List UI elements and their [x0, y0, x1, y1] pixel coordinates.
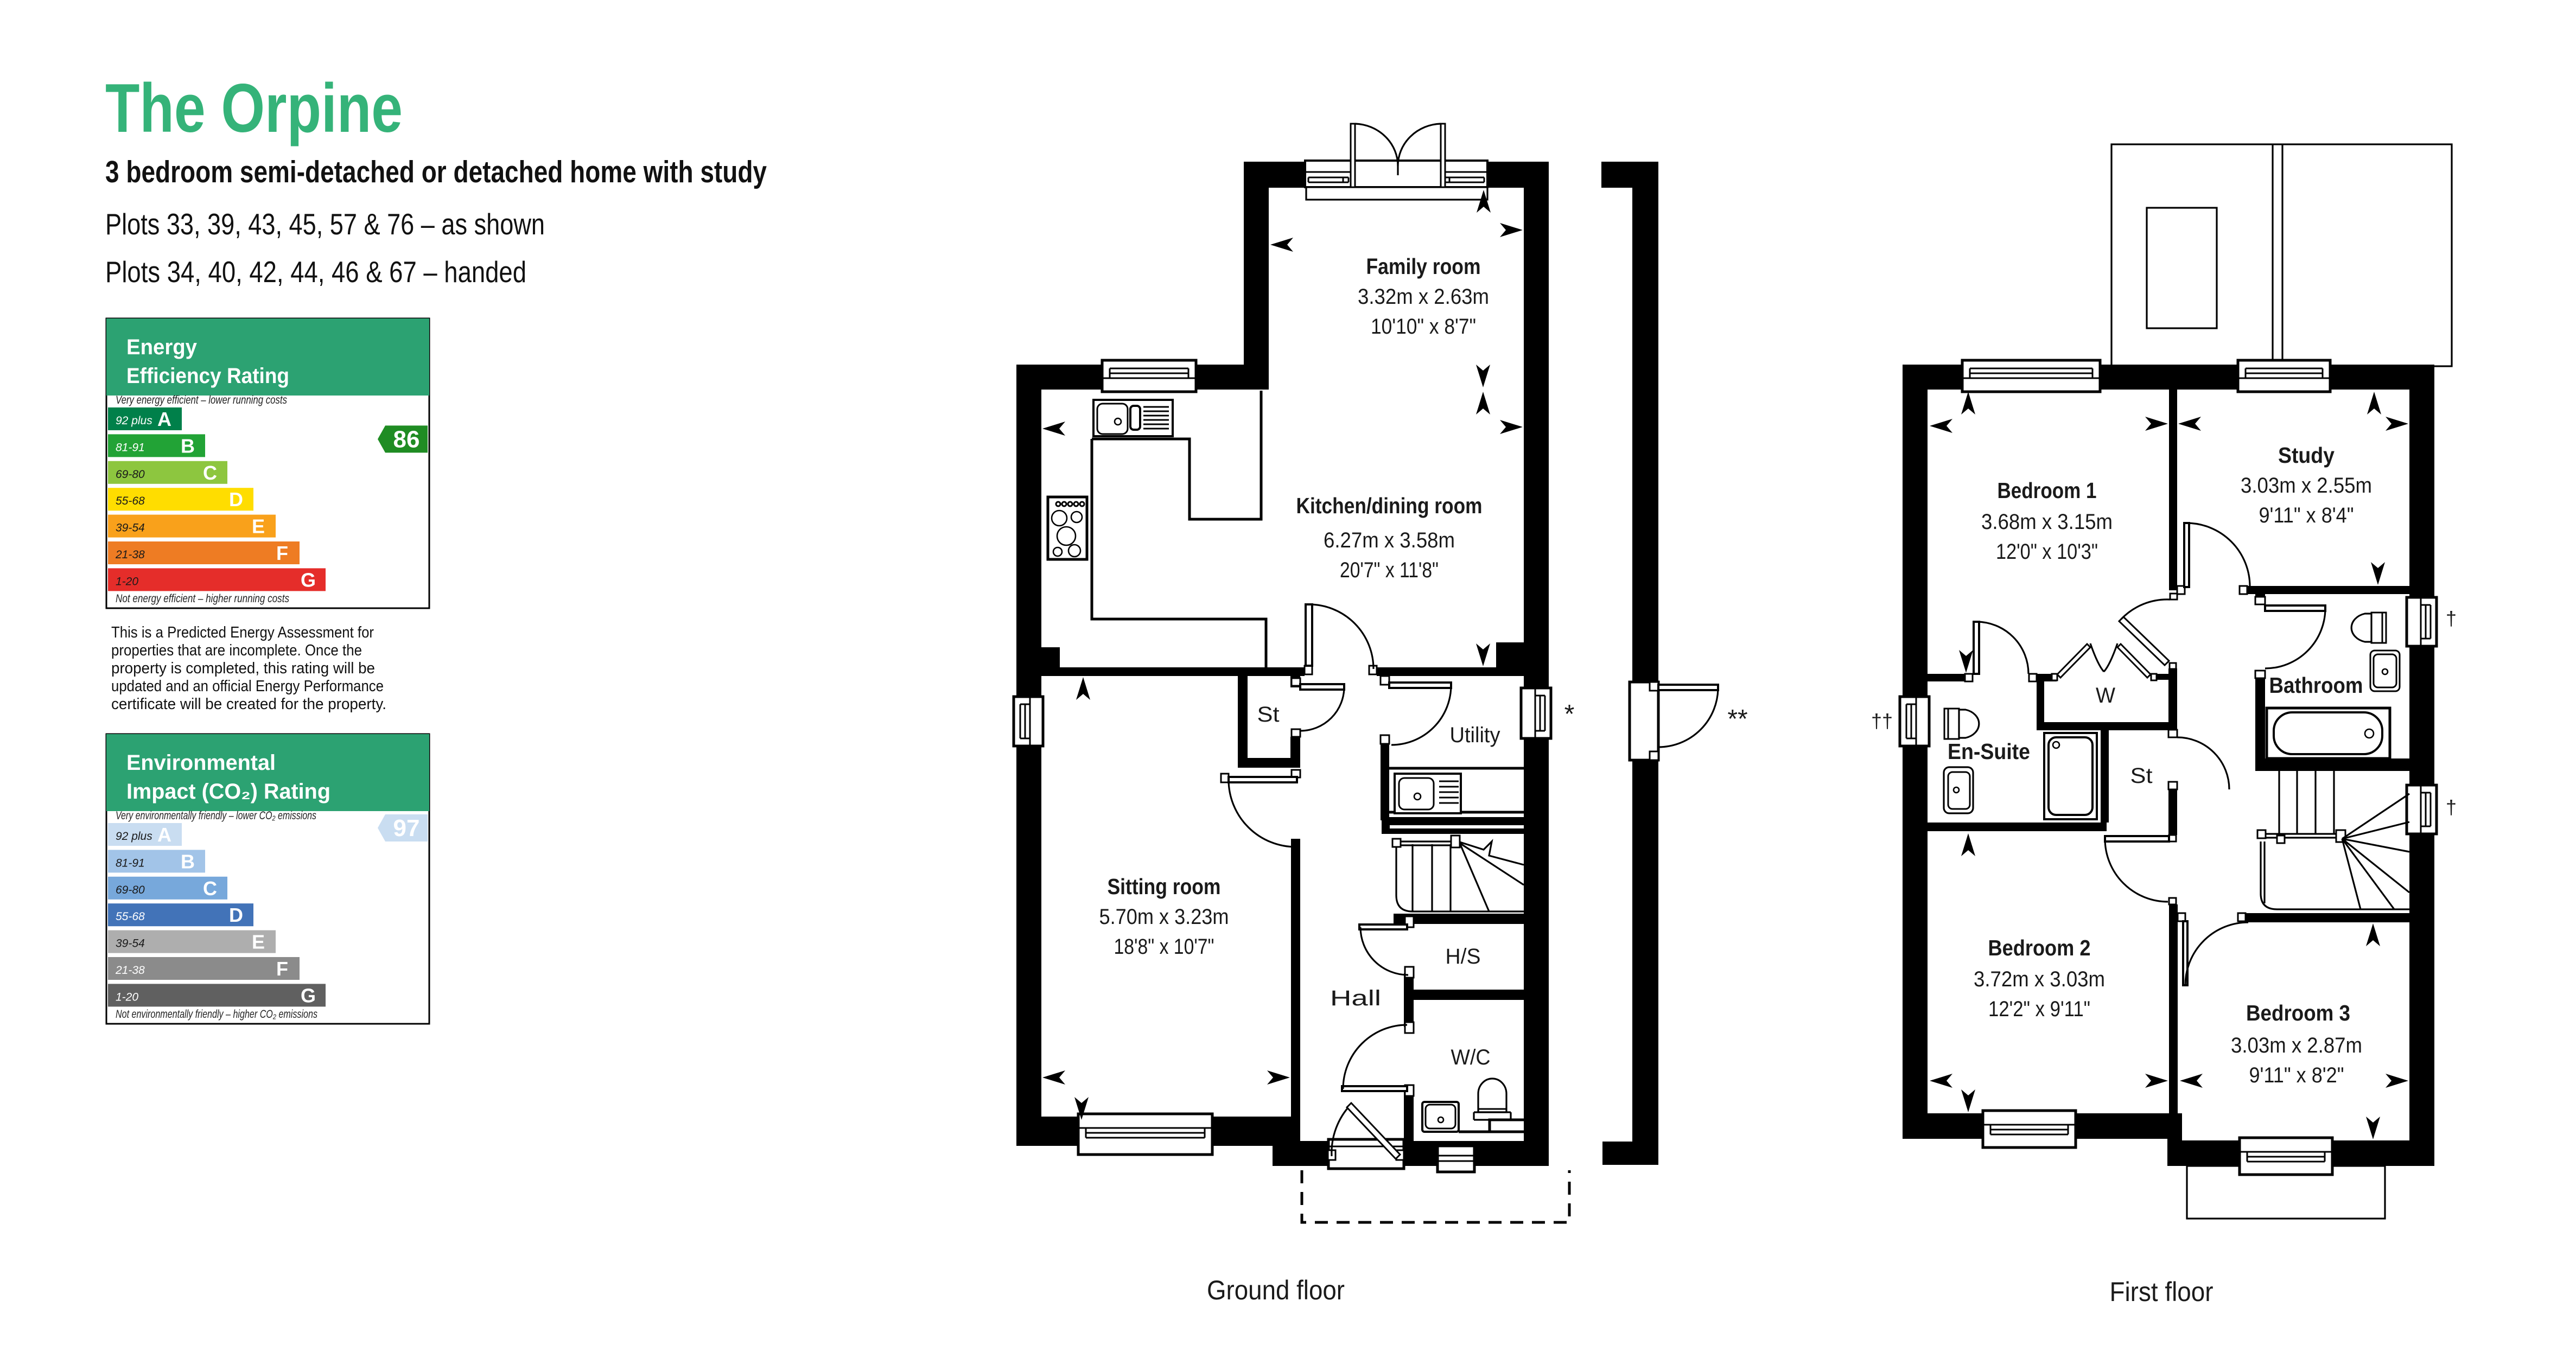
svg-text:*: *: [1564, 700, 1575, 729]
svg-text:Study: Study: [2278, 443, 2335, 468]
svg-text:property is completed, this ra: property is completed, this rating will …: [111, 660, 375, 677]
svg-text:12'2" x 9'11": 12'2" x 9'11": [1988, 997, 2090, 1021]
svg-text:12'0" x 10'3": 12'0" x 10'3": [1996, 540, 2098, 564]
svg-text:W: W: [2096, 684, 2115, 707]
svg-text:F: F: [276, 958, 288, 980]
svg-text:W/C: W/C: [1451, 1045, 1491, 1069]
svg-text:Efficiency Rating: Efficiency Rating: [126, 364, 289, 388]
svg-text:A: A: [157, 408, 171, 430]
svg-text:1-20: 1-20: [116, 575, 138, 588]
svg-text:81-91: 81-91: [116, 441, 145, 454]
svg-text:Kitchen/dining room: Kitchen/dining room: [1296, 493, 1483, 518]
svg-text:††: ††: [1871, 710, 1893, 732]
svg-text:H/S: H/S: [1446, 945, 1481, 968]
svg-text:39-54: 39-54: [116, 522, 145, 534]
svg-text:Plots 34, 40, 42, 44, 46 & 67: Plots 34, 40, 42, 44, 46 & 67 – handed: [105, 255, 526, 289]
svg-text:86: 86: [393, 426, 420, 452]
svg-text:Impact (CO₂) Rating: Impact (CO₂) Rating: [126, 780, 330, 804]
svg-text:E: E: [252, 931, 265, 953]
svg-text:Bedroom 3: Bedroom 3: [2246, 1000, 2350, 1025]
svg-text:E: E: [252, 515, 265, 538]
svg-text:Utility: Utility: [1450, 723, 1500, 747]
svg-text:En-Suite: En-Suite: [1948, 739, 2030, 764]
svg-text:3.32m x 2.63m: 3.32m x 2.63m: [1358, 285, 1489, 309]
svg-text:Bedroom 2: Bedroom 2: [1988, 935, 2091, 960]
svg-text:69-80: 69-80: [116, 884, 145, 896]
svg-text:39-54: 39-54: [116, 938, 145, 950]
svg-text:10'10" x 8'7": 10'10" x 8'7": [1371, 315, 1476, 339]
svg-text:18'8" x 10'7": 18'8" x 10'7": [1114, 935, 1214, 959]
svg-text:The Orpine: The Orpine: [105, 69, 403, 146]
svg-text:5.70m x 3.23m: 5.70m x 3.23m: [1099, 905, 1229, 929]
svg-text:St: St: [2130, 764, 2153, 788]
svg-text:certificate will be created fo: certificate will be created for the prop…: [111, 696, 386, 713]
svg-text:97: 97: [393, 815, 420, 841]
svg-text:92 plus: 92 plus: [116, 830, 152, 843]
svg-text:G: G: [301, 984, 316, 1006]
svg-text:3.03m x 2.55m: 3.03m x 2.55m: [2241, 474, 2372, 498]
svg-text:B: B: [181, 435, 195, 457]
svg-text:Bedroom 1: Bedroom 1: [1998, 478, 2097, 503]
svg-text:Energy: Energy: [126, 335, 198, 359]
svg-text:Family room: Family room: [1366, 254, 1481, 279]
svg-text:55-68: 55-68: [116, 910, 145, 923]
svg-text:D: D: [229, 488, 243, 511]
svg-text:Environmental: Environmental: [126, 751, 276, 775]
svg-text:**: **: [1727, 705, 1747, 734]
svg-text:6.27m x 3.58m: 6.27m x 3.58m: [1324, 528, 1455, 552]
svg-text:D: D: [229, 904, 243, 926]
svg-text:Not environmentally friendly –: Not environmentally friendly – higher CO…: [116, 1008, 317, 1021]
svg-text:3.03m x 2.87m: 3.03m x 2.87m: [2231, 1034, 2362, 1057]
svg-text:properties that are incomplete: properties that are incomplete. Once the: [111, 642, 362, 659]
svg-text:Very environmentally friendly: Very environmentally friendly – lower CO…: [116, 809, 316, 822]
svg-text:1-20: 1-20: [116, 991, 138, 1003]
svg-text:Sitting room: Sitting room: [1108, 874, 1221, 899]
svg-text:3.72m x 3.03m: 3.72m x 3.03m: [1974, 967, 2105, 991]
svg-text:updated and an official Energy: updated and an official Energy Performan…: [111, 678, 384, 695]
svg-text:21-38: 21-38: [115, 964, 145, 977]
svg-text:Not energy efficient – higher: Not energy efficient – higher running co…: [116, 592, 289, 605]
svg-text:55-68: 55-68: [116, 495, 145, 507]
svg-text:3 bedroom semi-detached or det: 3 bedroom semi-detached or detached home…: [105, 155, 767, 189]
svg-text:9'11" x 8'4": 9'11" x 8'4": [2259, 503, 2354, 527]
svg-text:Hall: Hall: [1330, 986, 1381, 1010]
svg-text:A: A: [157, 824, 171, 846]
svg-text:92 plus: 92 plus: [116, 415, 152, 427]
svg-text:C: C: [203, 877, 217, 900]
svg-text:20'7" x 11'8": 20'7" x 11'8": [1340, 558, 1439, 582]
svg-text:3.68m x 3.15m: 3.68m x 3.15m: [1981, 510, 2113, 534]
svg-text:C: C: [203, 462, 217, 484]
svg-text:†: †: [2446, 796, 2457, 818]
svg-text:21-38: 21-38: [115, 549, 145, 561]
svg-text:B: B: [181, 850, 195, 872]
svg-text:First floor: First floor: [2110, 1277, 2214, 1307]
svg-text:Ground floor: Ground floor: [1207, 1275, 1345, 1305]
svg-text:Very energy efficient – lower: Very energy efficient – lower running co…: [116, 394, 287, 406]
svg-text:Bathroom: Bathroom: [2269, 673, 2363, 698]
svg-text:St: St: [1257, 703, 1280, 726]
svg-text:G: G: [301, 569, 316, 591]
svg-text:81-91: 81-91: [116, 857, 145, 869]
svg-text:Plots 33, 39, 43, 45, 57 & 76: Plots 33, 39, 43, 45, 57 & 76 – as shown: [105, 207, 545, 241]
svg-text:This is a Predicted Energy Ass: This is a Predicted Energy Assessment fo…: [111, 624, 374, 641]
svg-text:†: †: [2446, 607, 2457, 629]
svg-text:69-80: 69-80: [116, 468, 145, 481]
svg-text:F: F: [276, 542, 288, 564]
svg-text:9'11" x 8'2": 9'11" x 8'2": [2249, 1063, 2344, 1087]
